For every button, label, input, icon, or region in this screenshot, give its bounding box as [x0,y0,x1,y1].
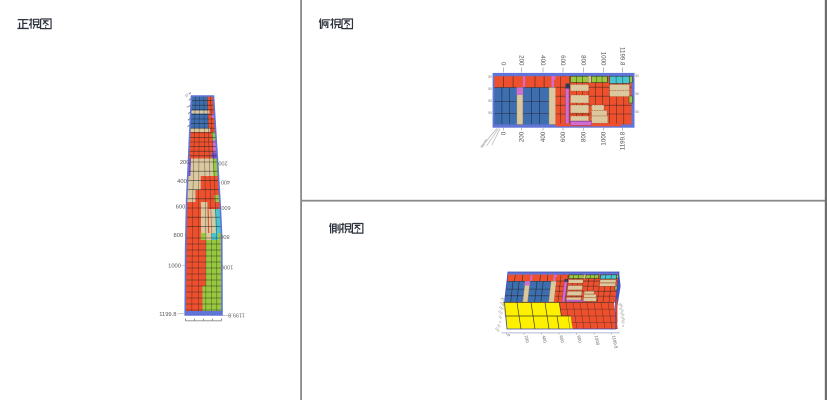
svg-text:600: 600 [221,204,230,210]
svg-text:400: 400 [539,55,546,66]
svg-text:50: 50 [635,74,639,78]
svg-text:200: 200 [518,131,525,142]
svg-text:50: 50 [488,99,492,103]
svg-text:400: 400 [540,131,547,142]
svg-text:1199.8: 1199.8 [159,312,176,318]
svg-text:400: 400 [221,179,230,185]
svg-text:1000: 1000 [221,264,233,270]
svg-text:1000: 1000 [168,264,181,270]
svg-text:200: 200 [218,160,227,166]
svg-text:0: 0 [499,62,506,66]
svg-text:50: 50 [635,110,639,114]
svg-text:1199.8: 1199.8 [619,47,626,66]
svg-text:800: 800 [174,233,184,239]
svg-text:1199.8: 1199.8 [620,131,627,150]
svg-text:800: 800 [581,131,588,142]
svg-text:50: 50 [488,87,492,91]
svg-text:0: 0 [500,131,507,135]
svg-text:600: 600 [176,205,186,211]
svg-text:600: 600 [560,131,567,142]
svg-text:1000: 1000 [601,131,608,145]
svg-text:50: 50 [488,75,492,79]
svg-text:1000: 1000 [600,52,607,66]
svg-text:1199.8: 1199.8 [228,312,245,318]
svg-text:800: 800 [580,55,587,66]
svg-text:50: 50 [635,92,639,96]
svg-text:200: 200 [517,55,524,66]
svg-text:200: 200 [180,160,190,166]
svg-text:600: 600 [559,55,566,66]
svg-text:800: 800 [220,233,229,239]
svg-text:50: 50 [488,111,492,115]
svg-text:400: 400 [177,179,187,185]
